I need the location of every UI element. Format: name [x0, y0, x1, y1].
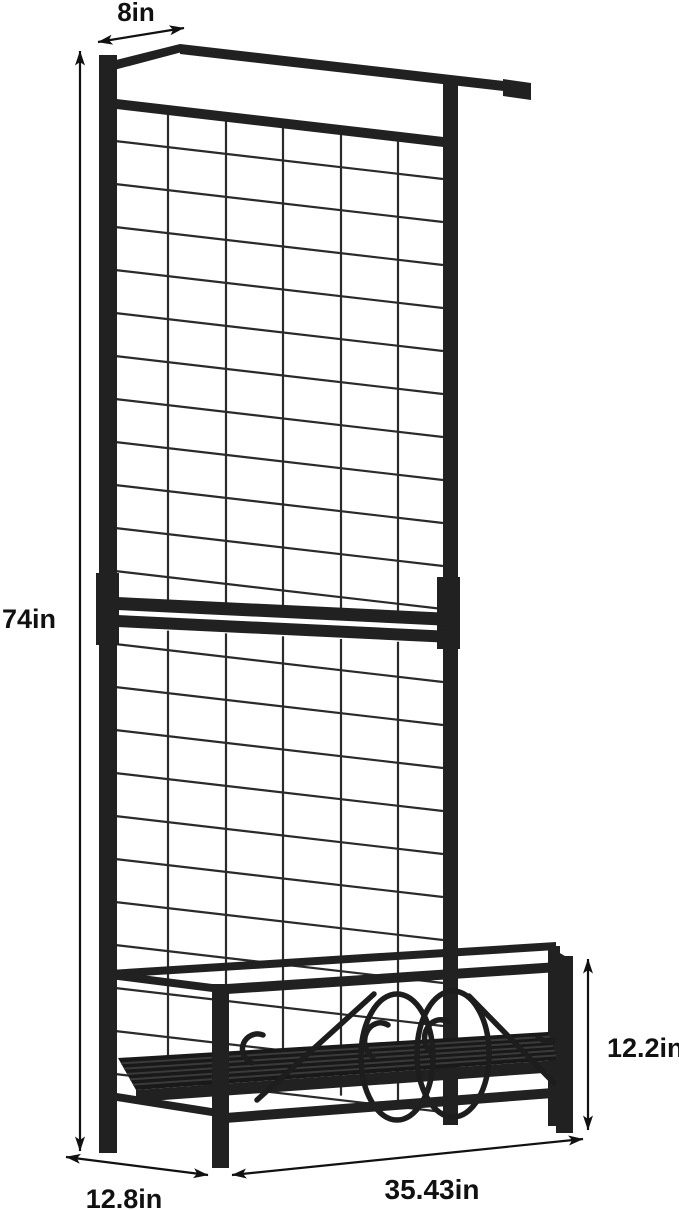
base-depth-label: 12.8in — [86, 1184, 163, 1210]
top-bar-end-cap — [503, 79, 531, 100]
mesh-line — [115, 141, 443, 179]
planter-box — [104, 942, 573, 1168]
mesh-line — [115, 816, 443, 854]
mesh-line — [115, 399, 443, 437]
mesh-line — [115, 485, 443, 523]
mesh-line — [115, 356, 443, 394]
mesh-line — [115, 730, 443, 768]
mesh-line — [115, 773, 443, 811]
mesh-line — [115, 184, 443, 222]
top-depth-dimension-arrow — [98, 28, 184, 42]
mesh-line — [115, 442, 443, 480]
planter-front-left-post — [212, 984, 229, 1168]
base-depth-dimension-arrow — [66, 1157, 208, 1175]
width-dimension-arrow — [232, 1139, 583, 1175]
width-label: 35.43in — [385, 1174, 480, 1205]
mesh-line — [115, 859, 443, 897]
planter-front-right-post — [556, 956, 573, 1133]
grid-top-rail — [108, 98, 452, 148]
mesh-line — [115, 270, 443, 308]
top-bar-depth-segment — [108, 44, 186, 70]
mesh-line — [115, 644, 443, 682]
left-post-connector-sleeve — [96, 573, 119, 645]
planter-height-label: 12.2in — [607, 1033, 679, 1063]
diagram-canvas: 8in 74in 12.2in 35.43in 12.8in — [0, 0, 679, 1210]
top-hanging-bar — [180, 44, 512, 92]
height-label: 74in — [2, 604, 56, 634]
mesh-line — [115, 227, 443, 265]
mesh-line — [115, 902, 443, 940]
mesh-line — [115, 313, 443, 351]
mesh-line — [115, 528, 443, 566]
mesh-line — [115, 687, 443, 725]
top-depth-label: 8in — [117, 0, 155, 27]
product-dimension-diagram: 8in 74in 12.2in 35.43in 12.8in — [0, 0, 679, 1210]
